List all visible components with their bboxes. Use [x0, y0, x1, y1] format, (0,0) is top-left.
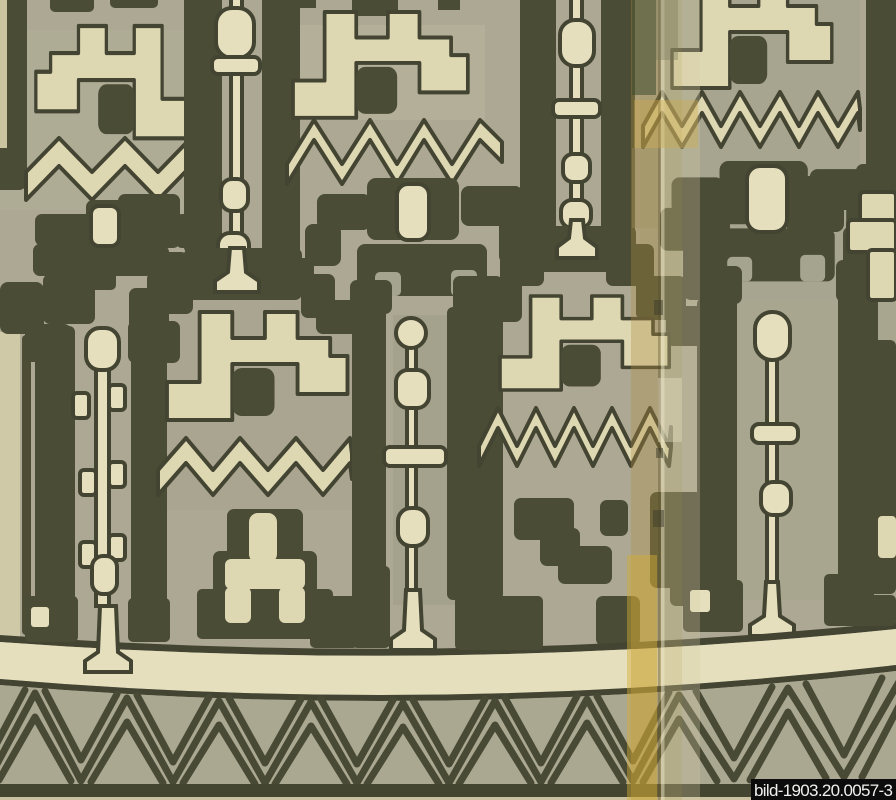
svg-text:bild-1903.20.0057-3: bild-1903.20.0057-3: [754, 781, 893, 800]
